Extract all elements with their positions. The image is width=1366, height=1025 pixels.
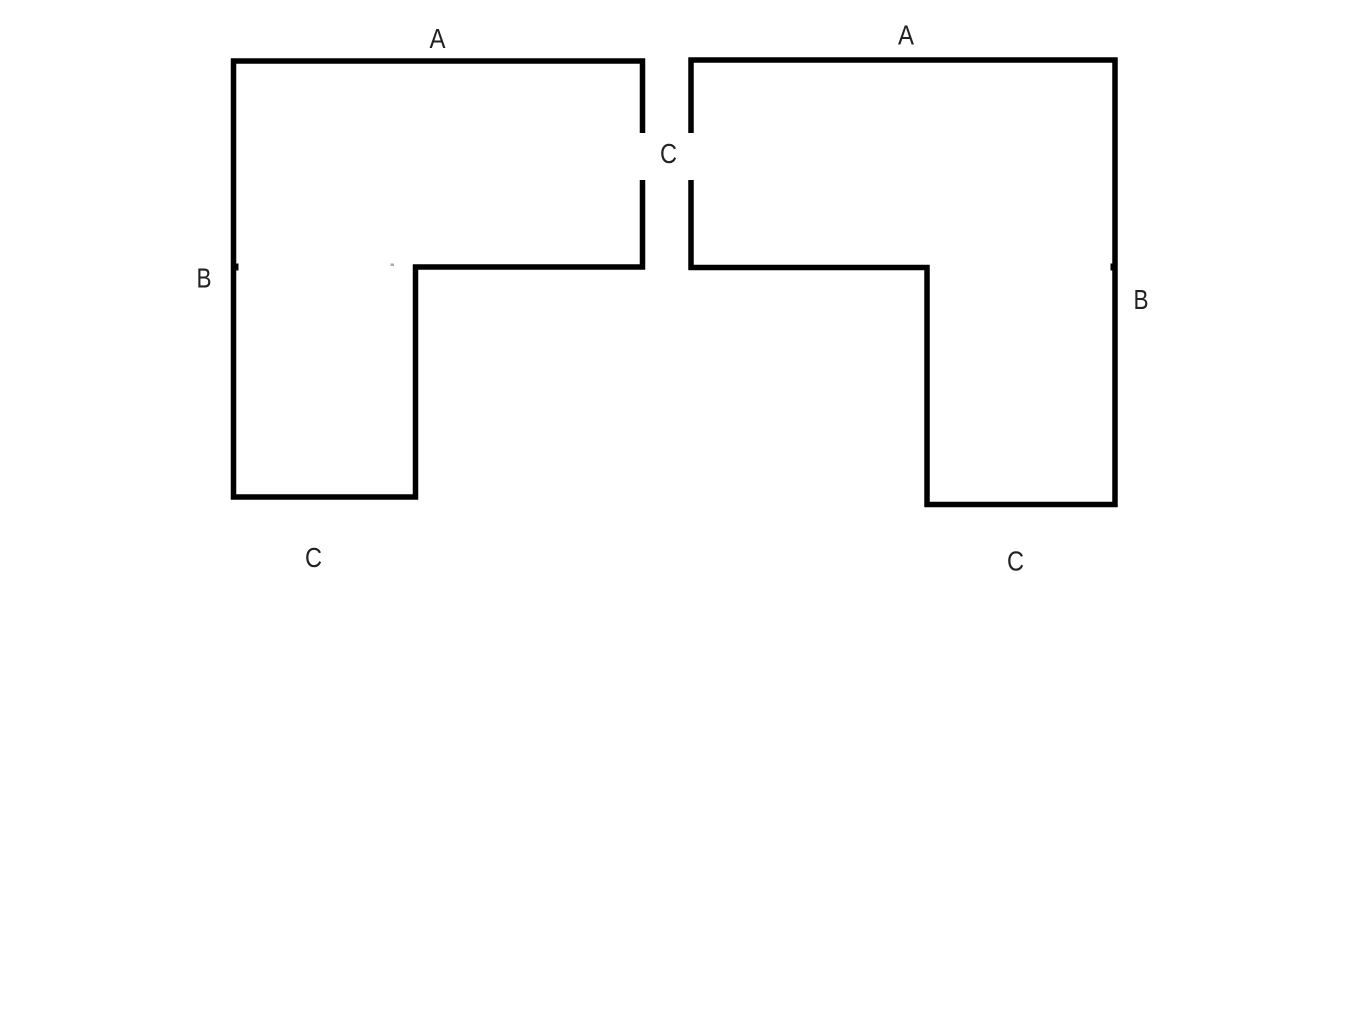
svg-text:C: C [1007,546,1024,577]
svg-text:C: C [660,138,677,169]
svg-text:C: C [305,542,322,573]
svg-text:A: A [430,23,446,54]
svg-text:B: B [197,263,212,294]
svg-text:A: A [898,20,914,51]
svg-text:B: B [1134,284,1149,315]
